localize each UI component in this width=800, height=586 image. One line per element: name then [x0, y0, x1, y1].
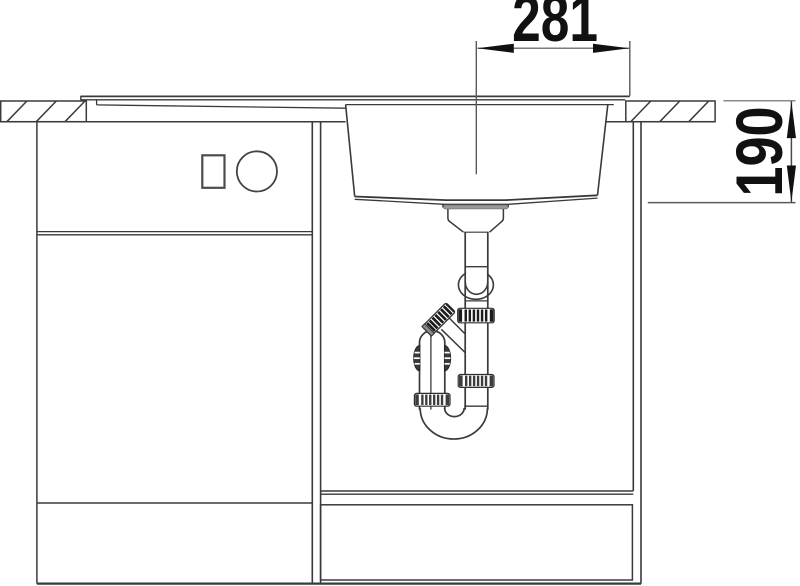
svg-text:190: 190: [722, 106, 796, 196]
svg-text:281: 281: [512, 0, 598, 55]
